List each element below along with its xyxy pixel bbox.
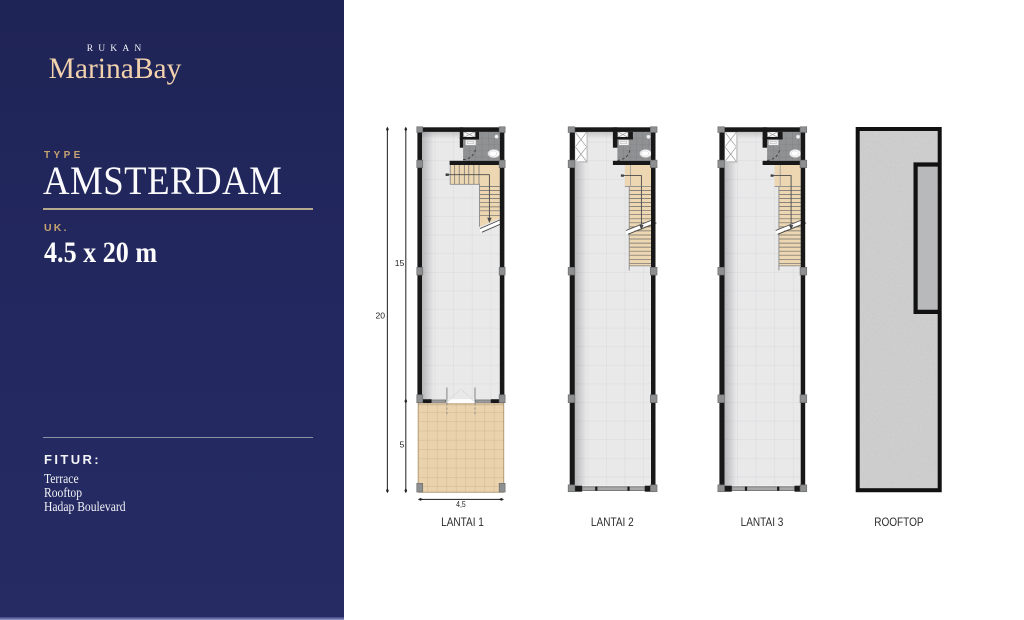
svg-text:5: 5 bbox=[400, 439, 405, 449]
svg-text:ROOFTOP: ROOFTOP bbox=[874, 516, 923, 529]
svg-text:15: 15 bbox=[395, 258, 405, 268]
svg-text:LANTAI 3: LANTAI 3 bbox=[741, 516, 784, 529]
svg-text:4,5: 4,5 bbox=[456, 500, 466, 510]
svg-text:LANTAI 1: LANTAI 1 bbox=[441, 516, 484, 529]
svg-text:20: 20 bbox=[375, 311, 385, 321]
svg-text:LANTAI 2: LANTAI 2 bbox=[591, 516, 634, 529]
